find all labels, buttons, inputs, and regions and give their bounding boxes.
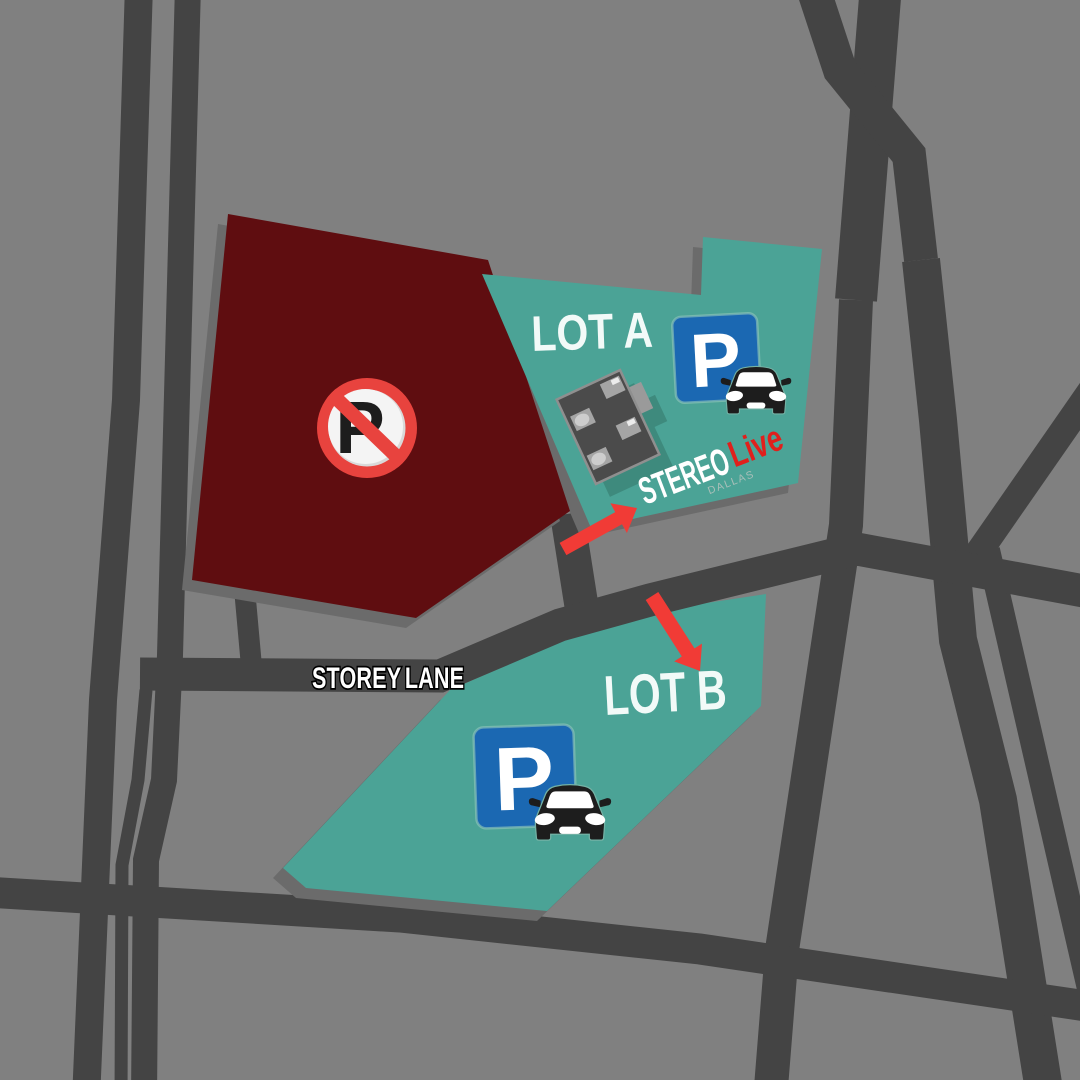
svg-text:STOREY LANE: STOREY LANE [312,660,464,694]
svg-text:LOT B: LOT B [602,660,728,728]
svg-text:LOT A: LOT A [530,302,653,362]
